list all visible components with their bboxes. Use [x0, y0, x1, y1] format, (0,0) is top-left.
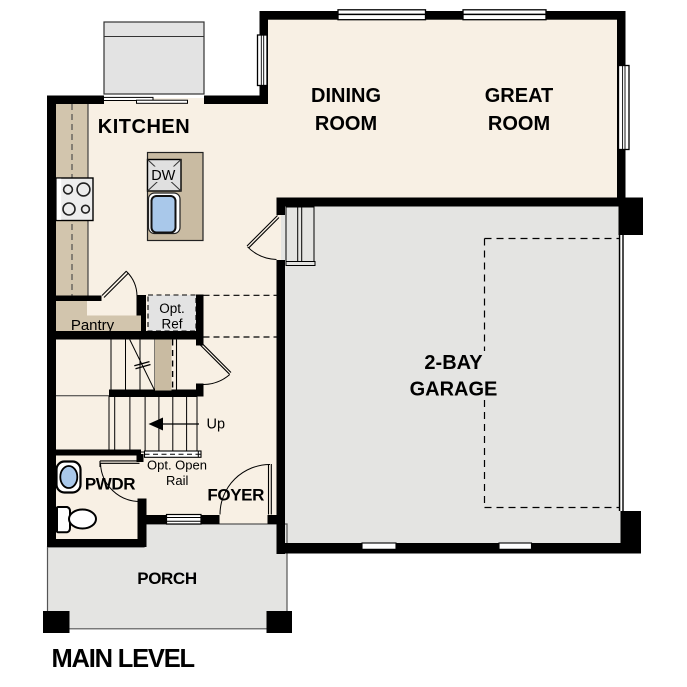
svg-text:Ref: Ref	[161, 317, 182, 332]
svg-text:DW: DW	[151, 168, 175, 184]
svg-text:GARAGE: GARAGE	[410, 379, 498, 401]
svg-text:MAIN LEVEL: MAIN LEVEL	[52, 645, 195, 673]
svg-text:DINING: DINING	[311, 85, 381, 107]
svg-text:Pantry: Pantry	[71, 317, 115, 334]
svg-text:Up: Up	[207, 417, 226, 433]
svg-text:GREAT: GREAT	[485, 85, 554, 107]
svg-text:Opt.: Opt.	[159, 301, 185, 316]
svg-text:ROOM: ROOM	[488, 113, 550, 135]
svg-text:ROOM: ROOM	[315, 113, 377, 135]
svg-text:FOYER: FOYER	[207, 486, 264, 505]
svg-text:2-BAY: 2-BAY	[424, 352, 483, 374]
svg-text:Opt. Open: Opt. Open	[147, 458, 207, 473]
svg-text:KITCHEN: KITCHEN	[98, 116, 190, 138]
svg-text:PWDR: PWDR	[85, 475, 135, 494]
svg-text:PORCH: PORCH	[137, 569, 197, 588]
svg-text:Rail: Rail	[166, 473, 189, 488]
